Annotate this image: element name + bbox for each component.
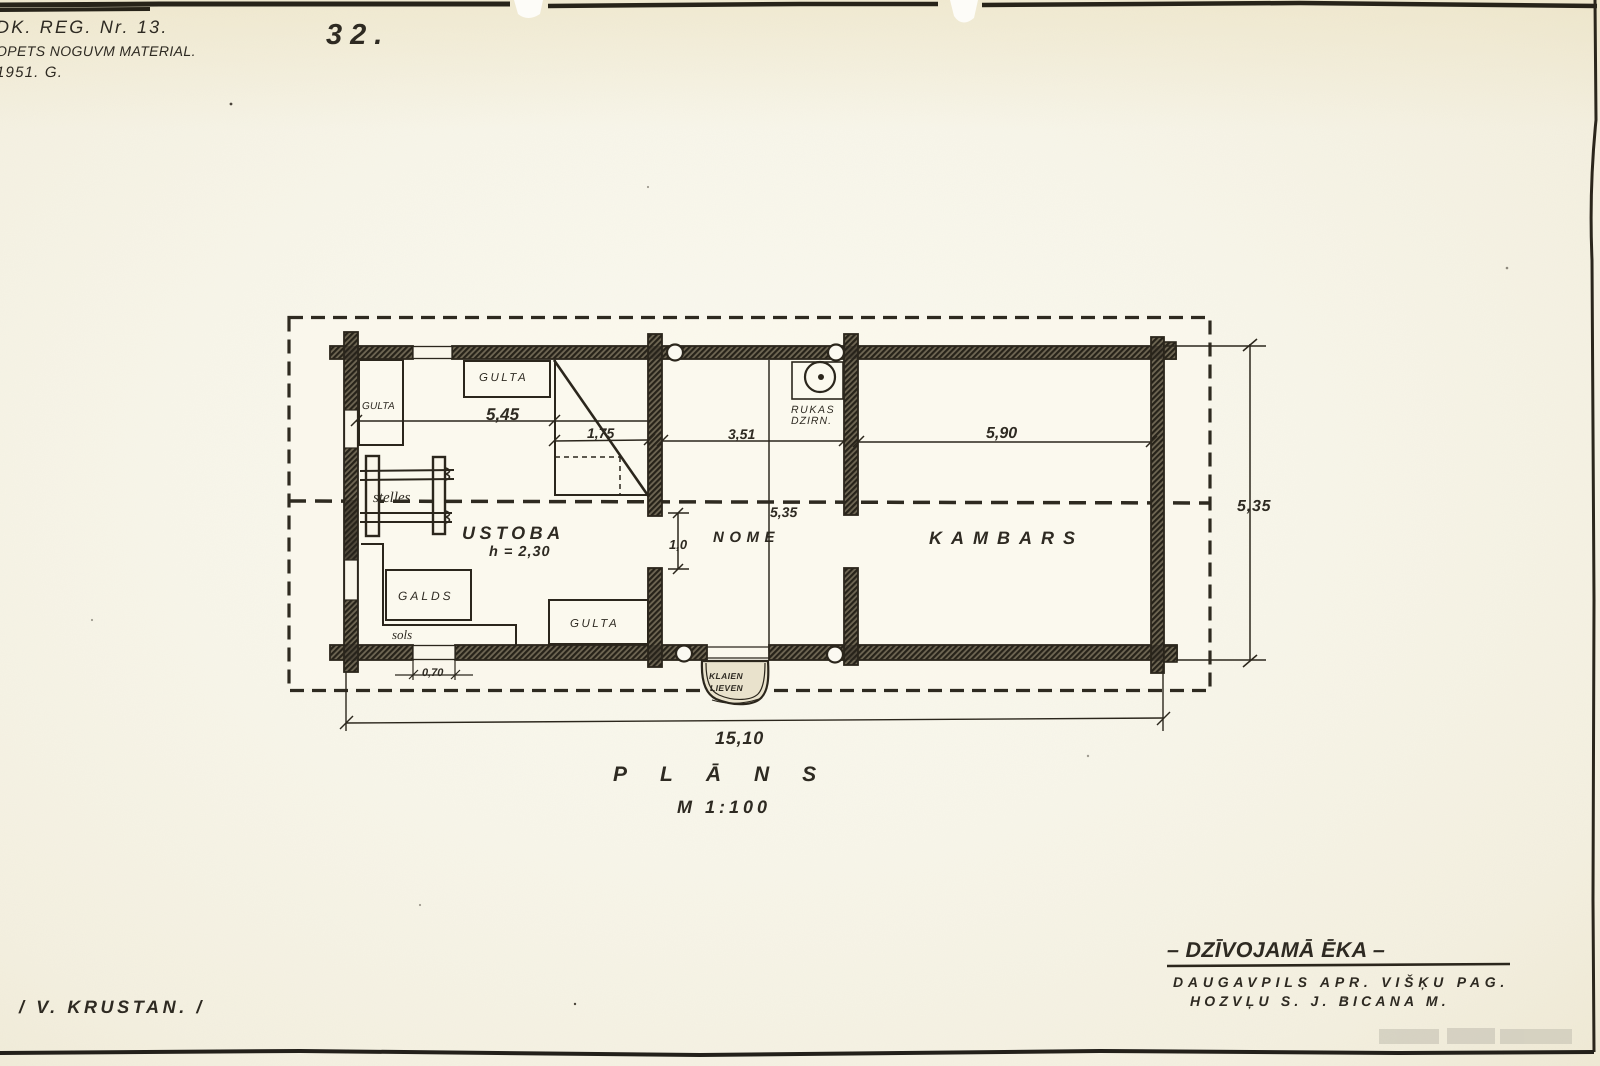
svg-text:DAUGAVPILS APR. VIŠĶU PAG.: DAUGAVPILS APR. VIŠĶU PAG.	[1173, 974, 1509, 991]
svg-text:5,35: 5,35	[770, 504, 797, 520]
svg-text:PLĀNS: PLĀNS	[613, 763, 849, 786]
svg-text:DK. REG. Nr. 13.: DK. REG. Nr. 13.	[0, 17, 169, 37]
svg-text:DZIRN.: DZIRN.	[791, 415, 832, 427]
svg-text:h = 2,30: h = 2,30	[489, 544, 551, 560]
svg-text:GULTA: GULTA	[479, 372, 528, 384]
svg-text:1,75: 1,75	[587, 425, 614, 441]
svg-text:NOME: NOME	[713, 529, 780, 546]
svg-text:– DZĪVOJAMĀ ĒKA –: – DZĪVOJAMĀ ĒKA –	[1167, 938, 1385, 962]
svg-text:3,51: 3,51	[728, 426, 755, 442]
svg-text:stelles: stelles	[373, 490, 411, 506]
svg-text:15,10: 15,10	[715, 728, 764, 748]
svg-text:sols: sols	[392, 627, 412, 642]
svg-text:GALDS: GALDS	[398, 589, 454, 603]
svg-text:32.: 32.	[326, 19, 390, 51]
svg-text:GULTA: GULTA	[570, 618, 619, 630]
svg-text:USTOBA: USTOBA	[462, 523, 565, 543]
svg-text:/ V. KRUSTAN. /: / V. KRUSTAN. /	[18, 997, 205, 1017]
svg-text:HOZVĻU S. J. BICANA M.: HOZVĻU S. J. BICANA M.	[1190, 993, 1450, 1010]
svg-text:GULTA: GULTA	[362, 401, 395, 412]
svg-text:KLAIEN: KLAIEN	[709, 671, 744, 681]
svg-text:5,35: 5,35	[1237, 498, 1272, 515]
svg-text:5,45: 5,45	[486, 405, 520, 424]
svg-text:OPETS NOGUVM MATERIAL.: OPETS NOGUVM MATERIAL.	[0, 43, 196, 59]
svg-text:1,0: 1,0	[669, 537, 688, 552]
svg-text:5,90: 5,90	[986, 425, 1017, 442]
svg-text:0,70: 0,70	[422, 667, 444, 679]
svg-text:KAMBARS: KAMBARS	[929, 528, 1084, 548]
svg-text:1951. G.: 1951. G.	[0, 64, 63, 81]
svg-text:LIEVEN: LIEVEN	[710, 683, 744, 693]
svg-text:M 1:100: M 1:100	[677, 797, 771, 817]
